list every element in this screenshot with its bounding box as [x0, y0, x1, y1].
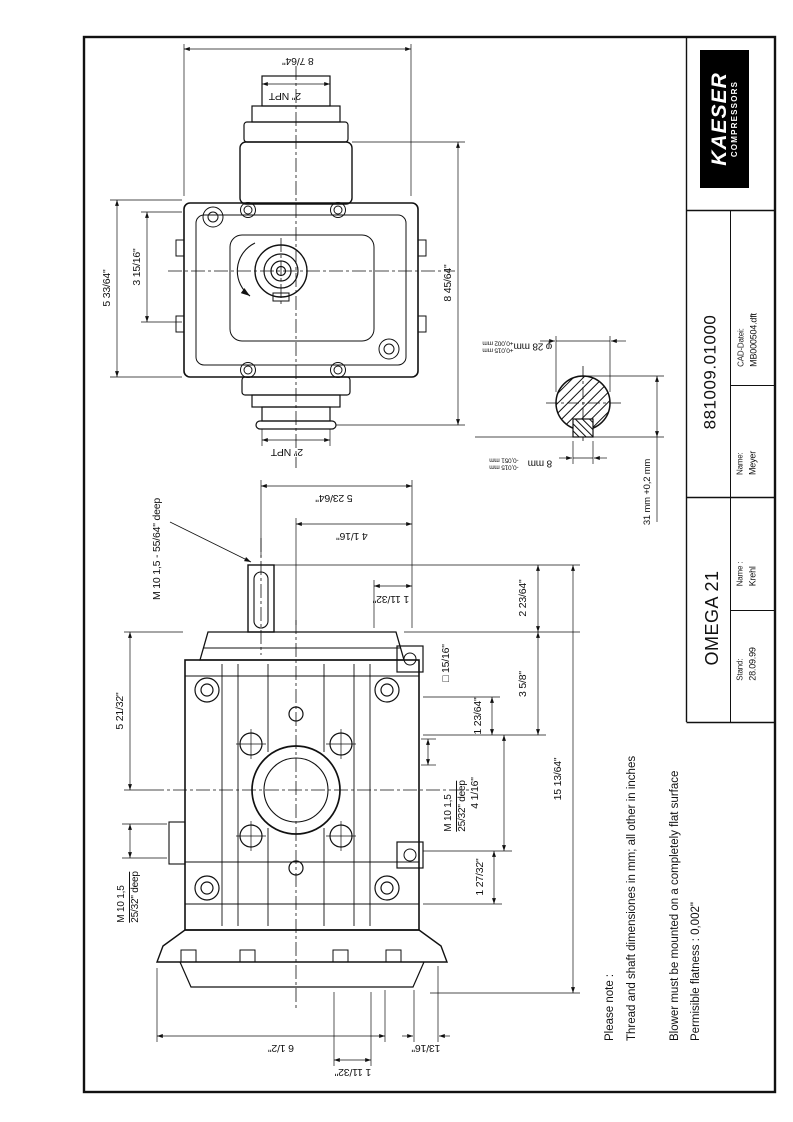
note-line-4: Permisible flatness : 0,002" — [690, 902, 703, 1041]
dim-total-height: 15 13/64" — [553, 758, 565, 801]
thread-callout-right: M 10 1,5 25/32" deep — [443, 780, 469, 831]
drawing-number: 881009.01000 — [702, 315, 721, 430]
dim-key-width: 8 mm — [528, 458, 552, 469]
note-line-1: Please note : — [604, 974, 617, 1041]
dia-tolerance: +0,015 mm +0,002 mm — [483, 339, 514, 354]
rotation-arrow — [237, 243, 255, 296]
dim-top-small: 1 11/32" — [373, 592, 409, 604]
name-label-2: Name : — [734, 562, 746, 587]
date-label: Stand: — [734, 647, 746, 680]
dim-port-bottom: 2" NPT — [271, 445, 303, 457]
thread-callout-top: M 10 1,5 - 55/64" deep — [152, 498, 164, 600]
cad-file-value: MB000504.dft — [747, 313, 761, 367]
front-view-dims — [122, 480, 573, 1066]
dim-shaft-offset: 5 23/64" — [315, 491, 352, 503]
key-tol-upper: -0,015 mm — [489, 463, 518, 470]
dim-bolt-span: 4 1/16" — [470, 777, 482, 809]
dim-shaft-diameter: φ 28 mm — [514, 341, 552, 352]
name-value-1: Meyer — [746, 451, 760, 475]
date-value: 28.09.99 — [746, 647, 760, 680]
thread-right-depth: 25/32" deep — [457, 780, 470, 831]
front-view — [122, 480, 580, 1066]
top-view-dims — [110, 44, 465, 446]
dim-height-inner: 3 15/16" — [132, 248, 144, 285]
name-cell-1: Name: Meyer — [734, 451, 760, 475]
thread-callout-left: M 10 1,5 25/32" deep — [116, 871, 142, 922]
drive-shaft — [248, 565, 274, 632]
cad-file-label: CAD-Datei: — [735, 313, 747, 367]
dim-bolt-bottom: 1 27/32" — [475, 858, 487, 895]
name-value-2: Krehl — [746, 562, 760, 587]
name-label-1: Name: — [734, 451, 746, 475]
mounting-feet — [157, 930, 447, 987]
corner-bolts — [195, 678, 399, 900]
shaft-end — [237, 243, 307, 301]
drawing-sheet: 8 7/64" 2" NPT 5 33/64" 3 15/16" 8 45/64… — [0, 0, 793, 1122]
square-boss-label: □ 15/16" — [441, 644, 453, 682]
dia-tol-lower: +0,002 mm — [483, 339, 514, 346]
cad-file-cell: CAD-Datei: MB000504.dft — [735, 313, 761, 367]
thread-right-size: M 10 1,5 — [443, 780, 457, 831]
shaft-section-detail — [475, 336, 664, 522]
note-line-2: Thread and shaft dimensiones in mm; all … — [626, 756, 639, 1041]
thread-left-size: M 10 1,5 — [116, 871, 130, 922]
dim-over-key: 31 mm +0,2 mm — [643, 459, 653, 525]
name-cell-2: Name : Krehl — [734, 562, 760, 587]
top-view — [110, 44, 465, 468]
dim-top-width: 8 7/64" — [282, 54, 314, 66]
key-tol-lower: -0,051 mm — [489, 456, 518, 463]
brand-name: KAESER — [709, 72, 731, 166]
dim-feet-small: 1 11/32" — [335, 1065, 371, 1077]
dim-flange-top: 3 5/8" — [518, 671, 530, 697]
left-thread-boss — [169, 822, 185, 864]
dim-bolt-top: 1 23/64" — [473, 697, 485, 734]
dim-height-outer: 5 33/64" — [102, 269, 114, 306]
dim-feet-offset: 13/16" — [412, 1041, 441, 1053]
dim-depth: 8 45/64" — [443, 264, 455, 301]
dim-port-top: 2" NPT — [269, 89, 301, 101]
thread-left-depth: 25/32" deep — [130, 871, 143, 922]
dim-shaft-height: 2 23/64" — [518, 579, 530, 616]
dim-feet-width: 6 1/2" — [268, 1041, 294, 1053]
dim-left-height: 5 21/32" — [115, 692, 127, 729]
shaft-detail-dims — [475, 336, 664, 522]
note-line-3: Blower must be mounted on a completely f… — [669, 771, 682, 1041]
brand-subtitle: COMPRESSORS — [731, 72, 739, 166]
key-tolerance: -0,015 mm -0,051 mm — [489, 456, 518, 471]
date-cell: Stand: 28.09.99 — [734, 647, 760, 680]
dia-tol-upper: +0,015 mm — [483, 346, 514, 353]
kaeser-logo-text: KAESER COMPRESSORS — [709, 72, 739, 166]
dim-top-center: 4 1/16" — [336, 529, 368, 541]
model-name: OMEGA 21 — [703, 570, 723, 665]
